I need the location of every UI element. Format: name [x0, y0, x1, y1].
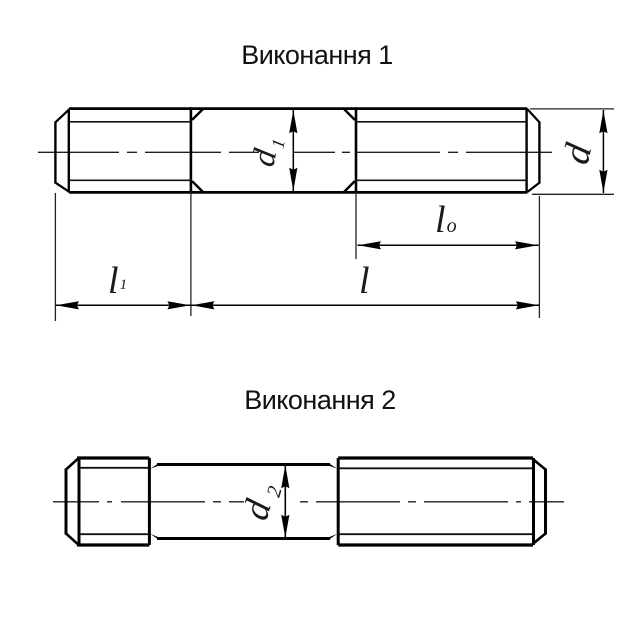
- svg-text:l: l: [359, 260, 370, 302]
- svg-text:Виконання 1: Виконання 1: [241, 40, 393, 70]
- svg-text:Виконання 2: Виконання 2: [244, 385, 396, 415]
